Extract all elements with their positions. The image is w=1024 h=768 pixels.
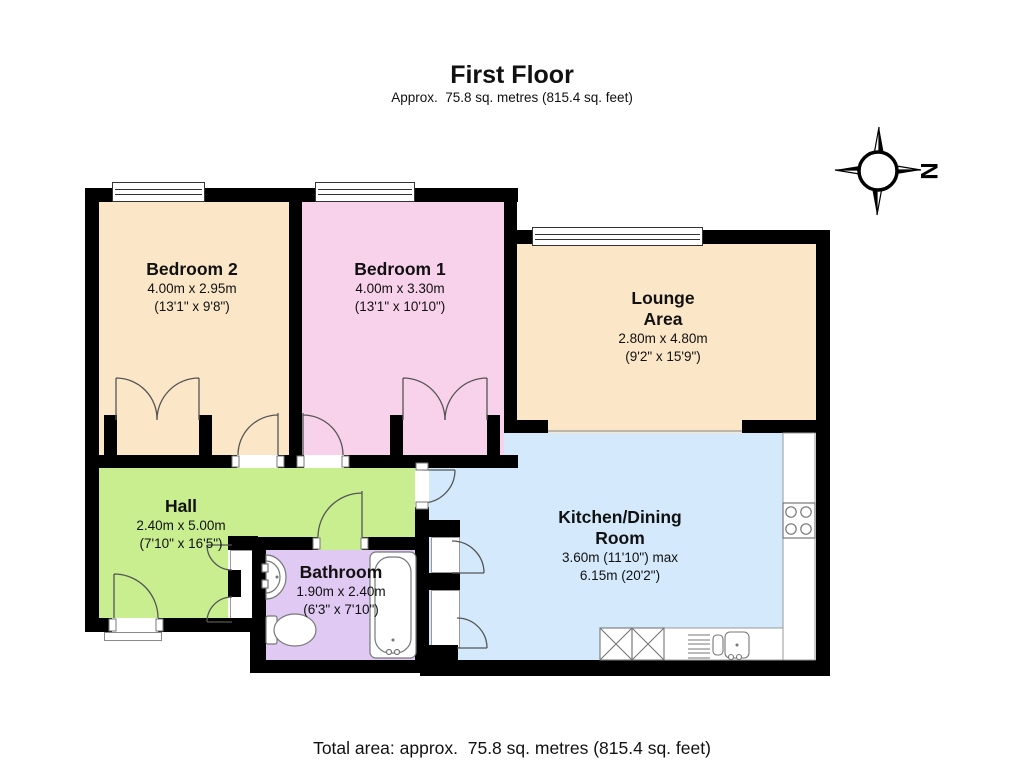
wall-bedroom-divider <box>289 202 302 455</box>
floor-plan-page: First Floor Approx. 75.8 sq. metres (815… <box>0 0 1024 768</box>
label-bathroom: Bathroom 1.90m x 2.40m (6'3" x 7'10") <box>231 562 451 619</box>
room-dims-imperial: (13'1" x 10'10") <box>290 298 510 316</box>
label-lounge: Lounge Area 2.80m x 4.80m (9'2" x 15'9") <box>553 288 773 366</box>
room-bedroom2 <box>99 202 289 455</box>
page-subtitle: Approx. 75.8 sq. metres (815.4 sq. feet) <box>0 90 1024 105</box>
room-dims-imperial: (13'1" x 9'8") <box>82 298 302 316</box>
room-kitchen-upper <box>504 433 783 467</box>
wall-wardrobe1-left <box>390 415 403 455</box>
wall-mid-c <box>344 455 518 468</box>
compass-icon: N <box>835 127 942 215</box>
wall-lounge-stub-left <box>504 420 548 433</box>
room-name: Area <box>553 309 773 330</box>
label-bedroom2: Bedroom 2 4.00m x 2.95m (13'1" x 9'8") <box>82 259 302 316</box>
room-dims-metric: 2.80m x 4.80m <box>553 330 773 348</box>
hob-icon <box>783 503 815 538</box>
room-bedroom1 <box>302 202 504 455</box>
entrance-threshold <box>104 632 162 641</box>
room-name: Bedroom 1 <box>290 259 510 280</box>
wall-left <box>85 188 99 632</box>
room-dims-imperial: (6'3" x 7'10") <box>231 601 451 619</box>
wall-lounge-left <box>504 202 517 433</box>
room-dims-metric: 2.40m x 5.00m <box>71 517 291 535</box>
window-lounge <box>532 227 703 246</box>
page-title: First Floor <box>0 61 1024 90</box>
wall-wardrobe1-right <box>487 415 500 455</box>
room-dims-metric: 1.90m x 2.40m <box>231 583 451 601</box>
wall-kitchen-bottom <box>420 660 830 676</box>
compass-north-label: N <box>915 162 942 179</box>
window-bedroom2 <box>112 182 205 202</box>
room-name: Bedroom 2 <box>82 259 302 280</box>
wall-mid-b <box>278 455 304 468</box>
room-dims-metric: 4.00m x 2.95m <box>82 280 302 298</box>
label-bedroom1: Bedroom 1 4.00m x 3.30m (13'1" x 10'10") <box>290 259 510 316</box>
room-dims-metric: 4.00m x 3.30m <box>290 280 510 298</box>
room-name: Bathroom <box>231 562 451 583</box>
label-kitchen: Kitchen/Dining Room 3.60m (11'10") max 6… <box>510 507 730 585</box>
wall-bathroom-bottom <box>250 660 430 673</box>
wall-bathroom-top-b <box>362 537 415 550</box>
wall-hall-bottom-a <box>85 618 112 632</box>
wall-wardrobe2-left <box>104 415 117 455</box>
room-dims-imperial: 6.15m (20'2") <box>510 567 730 585</box>
wall-wardrobe2-right <box>199 415 212 455</box>
wall-lounge-stub-right <box>742 420 816 433</box>
room-name: Lounge <box>553 288 773 309</box>
room-dims-imperial: (7'10" x 16'5") <box>71 535 291 553</box>
wall-hall-bottom-b <box>158 618 258 632</box>
room-name: Hall <box>71 496 291 517</box>
counter-right <box>783 433 815 660</box>
room-name: Kitchen/Dining <box>510 507 730 528</box>
wall-mid-a <box>85 455 237 468</box>
wall-kitchen-cupboard-stub-1 <box>429 520 460 537</box>
wall-right <box>816 230 830 676</box>
label-hall: Hall 2.40m x 5.00m (7'10" x 16'5") <box>71 496 291 553</box>
room-hall-doorway <box>318 537 362 550</box>
room-dims-metric: 3.60m (11'10") max <box>510 549 730 567</box>
room-name: Room <box>510 528 730 549</box>
total-area-text: Total area: approx. 75.8 sq. metres (815… <box>0 738 1024 759</box>
room-dims-imperial: (9'2" x 15'9") <box>553 348 773 366</box>
window-bedroom1 <box>315 182 415 202</box>
wall-kitchen-cupboard-stub-3 <box>429 645 458 660</box>
